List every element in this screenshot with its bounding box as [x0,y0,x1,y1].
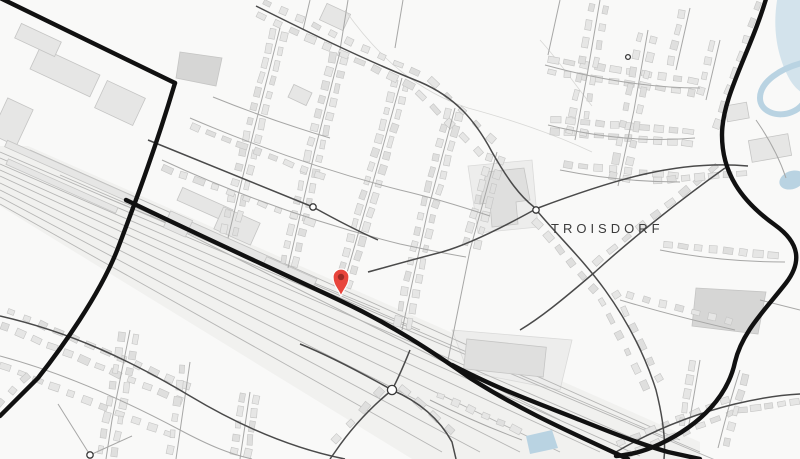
place-label-troisdorf: TROISDORF [551,221,664,236]
map-drawing [0,0,800,459]
map-canvas[interactable]: TROISDORF [0,0,800,459]
